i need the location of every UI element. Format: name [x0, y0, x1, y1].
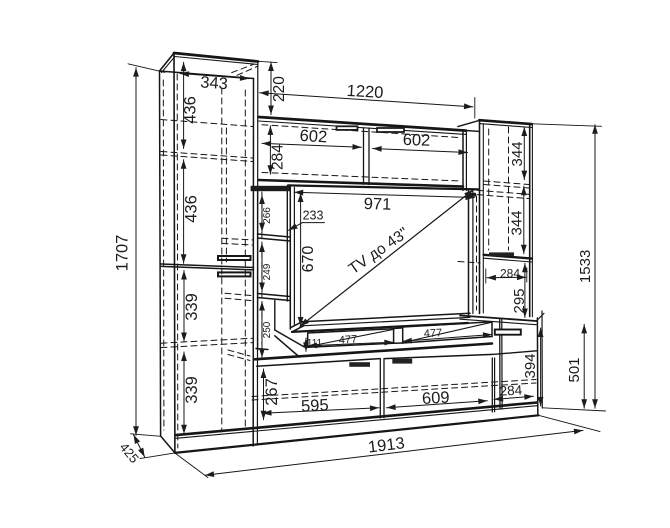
svg-text:1220: 1220	[346, 82, 384, 102]
svg-text:284: 284	[499, 382, 523, 398]
svg-text:971: 971	[364, 195, 392, 214]
svg-text:344: 344	[508, 210, 525, 235]
svg-text:1913: 1913	[367, 434, 406, 456]
svg-text:602: 602	[402, 131, 430, 150]
svg-text:343: 343	[200, 73, 229, 93]
svg-text:TV до 43": TV до 43"	[346, 224, 412, 277]
svg-text:501: 501	[566, 357, 583, 382]
svg-text:111: 111	[307, 338, 323, 349]
svg-text:267: 267	[263, 378, 281, 406]
svg-text:220: 220	[271, 76, 288, 102]
svg-text:477: 477	[424, 327, 443, 340]
svg-text:233: 233	[303, 208, 324, 222]
svg-text:477: 477	[339, 334, 358, 347]
svg-text:595: 595	[301, 396, 329, 415]
svg-text:249: 249	[262, 263, 273, 280]
svg-text:1707: 1707	[113, 235, 131, 272]
svg-text:602: 602	[299, 127, 328, 147]
svg-text:394: 394	[522, 353, 539, 378]
svg-text:436: 436	[182, 195, 200, 223]
svg-text:1533: 1533	[577, 250, 594, 283]
svg-text:339: 339	[183, 293, 201, 321]
svg-text:266: 266	[262, 207, 273, 224]
svg-text:344: 344	[509, 141, 526, 166]
svg-text:436: 436	[181, 96, 199, 124]
svg-text:339: 339	[183, 376, 201, 404]
svg-text:250: 250	[262, 321, 273, 338]
svg-text:670: 670	[300, 246, 317, 273]
svg-text:284: 284	[500, 267, 520, 281]
svg-text:295: 295	[511, 288, 528, 313]
svg-text:609: 609	[422, 389, 450, 408]
svg-text:284: 284	[269, 144, 286, 170]
